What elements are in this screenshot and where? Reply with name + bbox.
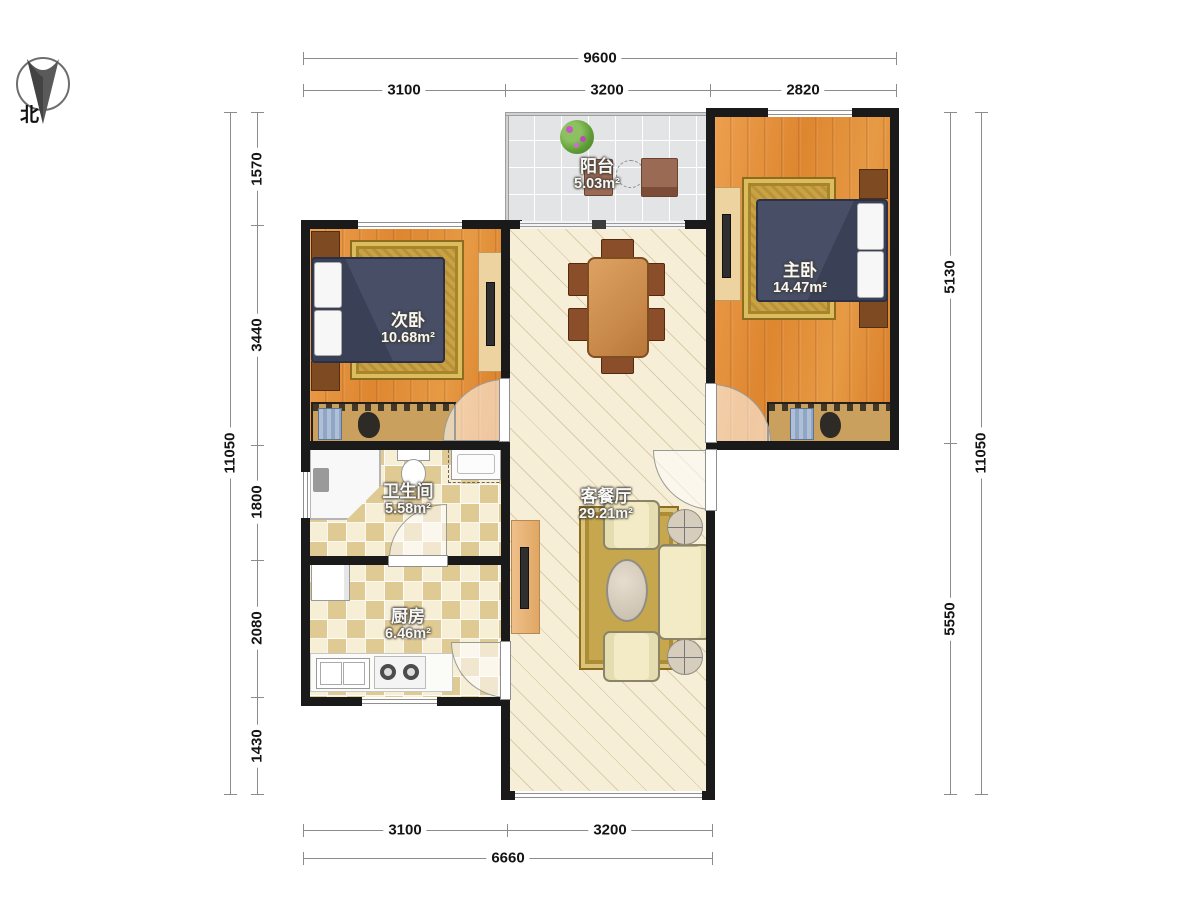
room-area: 6.46m² (366, 626, 450, 643)
room-area: 5.03m² (555, 176, 639, 193)
floorplan-canvas: 北 9600 3100 3200 2820 3100 3200 6660 110… (0, 0, 1200, 900)
compass: 北 (12, 50, 76, 132)
shower-head-icon (313, 468, 329, 492)
room-area: 29.21m² (564, 506, 648, 523)
side-table (667, 639, 703, 675)
dim-label: 1800 (249, 480, 266, 523)
burner-icon (380, 664, 396, 680)
dim-right-total-label: 11050 (973, 428, 990, 479)
compass-north-label: 北 (20, 100, 39, 127)
second-bedroom-nightstand (311, 361, 340, 391)
pillow (314, 262, 342, 308)
dim-label: 1570 (249, 147, 266, 190)
room-area: 5.58m² (366, 501, 450, 518)
room-area: 10.68m² (366, 330, 450, 347)
dim-label: 3100 (382, 82, 425, 99)
dim-right-segments-line: 5130 5550 (950, 112, 951, 795)
wall (501, 220, 510, 378)
bathroom-door (388, 555, 448, 567)
room-name: 客餐厅 (564, 487, 648, 506)
plant-flower-icon (574, 143, 579, 148)
room-name: 阳台 (555, 157, 639, 176)
balcony-chair (641, 158, 678, 197)
sink-basin (320, 662, 342, 685)
plant-flower-icon (566, 126, 573, 133)
second-bedroom-window (358, 220, 462, 229)
plant-flower-icon (580, 136, 586, 142)
dim-left-total-label: 11050 (222, 428, 239, 479)
coffee-table (606, 559, 648, 622)
dim-top-segments-line: 3100 3200 2820 (303, 90, 897, 91)
bathroom-sink-icon (451, 448, 501, 480)
wall (501, 697, 510, 800)
wall (301, 220, 310, 472)
balcony-railing (505, 112, 509, 224)
dim-label: 5550 (942, 597, 959, 640)
burner-icon (403, 664, 419, 680)
second-bedroom-door (499, 378, 510, 442)
sink-basin (457, 454, 495, 474)
armchair (603, 631, 660, 682)
master-window (768, 108, 852, 117)
dim-label: 3440 (249, 313, 266, 356)
balcony-railing (505, 112, 707, 116)
wall (301, 556, 388, 565)
wall (301, 518, 310, 706)
dining-chair (568, 263, 589, 296)
room-label-balcony: 阳台 5.03m² (555, 157, 639, 193)
wall (706, 508, 715, 800)
dim-top-total-label: 9600 (578, 50, 621, 67)
master-nightstand (859, 298, 888, 328)
pillow (314, 310, 342, 356)
kitchen-sink-icon (316, 658, 370, 689)
room-label-master-bedroom: 主卧 14.47m² (758, 261, 842, 297)
wardrobe-clothes (318, 408, 342, 440)
dim-left-total-line: 11050 (230, 112, 231, 795)
dim-bottom-total-label: 6660 (486, 850, 529, 867)
room-name: 主卧 (758, 261, 842, 280)
sofa (658, 544, 711, 640)
dim-label: 2080 (249, 606, 266, 649)
dining-chair (568, 308, 589, 341)
wall (445, 556, 510, 565)
living-tv-icon (520, 547, 529, 609)
master-tv-icon (722, 214, 731, 278)
room-name: 卫生间 (366, 482, 450, 501)
dim-left-segments-line: 1570 3440 1800 2080 1430 (257, 112, 258, 795)
room-name: 次卧 (366, 311, 450, 330)
entry-door (705, 449, 717, 511)
fridge-icon (311, 564, 350, 601)
dim-right-total-line: 11050 (981, 112, 982, 795)
side-table (667, 509, 703, 545)
dim-label: 1430 (249, 724, 266, 767)
wall (501, 441, 510, 642)
room-label-bathroom: 卫生间 5.58m² (366, 482, 450, 518)
wardrobe-clothes (790, 408, 814, 440)
dim-bottom-segments-line: 3100 3200 (303, 830, 713, 831)
master-door (705, 383, 717, 443)
dim-label: 3200 (585, 82, 628, 99)
sliding-door-frame (592, 220, 606, 229)
pillow (857, 251, 884, 298)
sink-basin (343, 662, 365, 685)
stove-icon (374, 656, 426, 689)
dim-label: 2820 (781, 82, 824, 99)
second-bedroom-tv-icon (486, 282, 495, 346)
room-name: 厨房 (366, 607, 450, 626)
bathroom-window (301, 472, 310, 518)
master-nightstand (859, 169, 888, 199)
dim-label: 5130 (942, 255, 959, 298)
dim-top-total-line: 9600 (303, 58, 897, 59)
room-area: 14.47m² (758, 280, 842, 297)
dining-table (587, 257, 649, 358)
kitchen-window (362, 697, 437, 706)
living-window (515, 791, 702, 800)
wall (684, 220, 706, 229)
room-label-living-dining: 客餐厅 29.21m² (564, 487, 648, 523)
wall (301, 441, 510, 450)
plant-icon (560, 120, 594, 154)
wall (706, 441, 899, 450)
dim-label: 3200 (588, 822, 631, 839)
room-label-kitchen: 厨房 6.46m² (366, 607, 450, 643)
pillow (857, 203, 884, 250)
wardrobe-bag (358, 412, 380, 438)
wardrobe-bag (820, 412, 841, 438)
second-bedroom-nightstand (311, 231, 340, 260)
dim-label: 3100 (383, 822, 426, 839)
wall (890, 108, 899, 449)
wall (706, 108, 715, 383)
dim-bottom-total-line: 6660 (303, 858, 713, 859)
room-label-second-bedroom: 次卧 10.68m² (366, 311, 450, 347)
kitchen-door (500, 641, 511, 700)
